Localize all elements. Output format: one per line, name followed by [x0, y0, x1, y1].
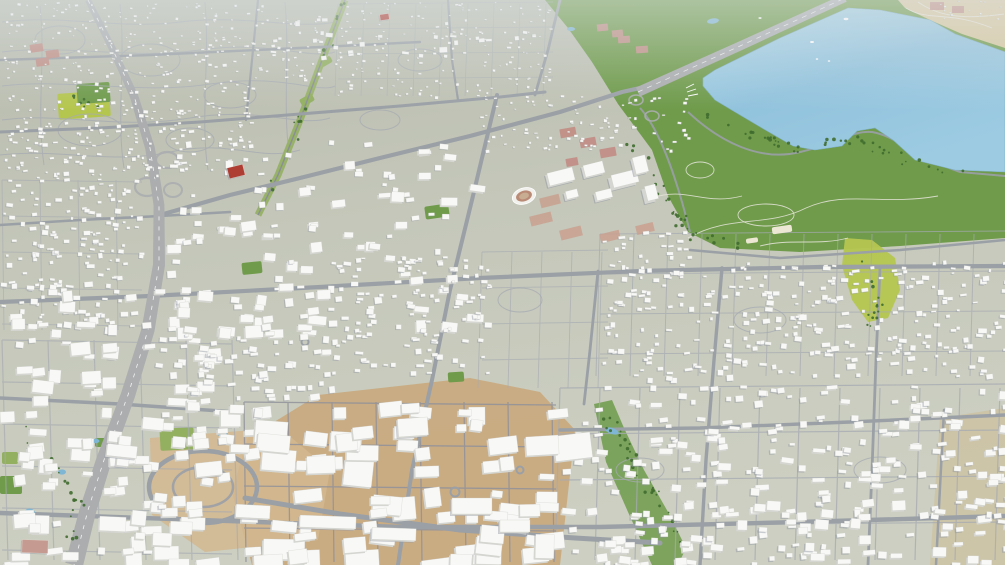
distance-haze	[0, 0, 1005, 110]
city-3d-render-viewport	[0, 0, 1005, 565]
city-aerial-view	[0, 0, 1005, 565]
